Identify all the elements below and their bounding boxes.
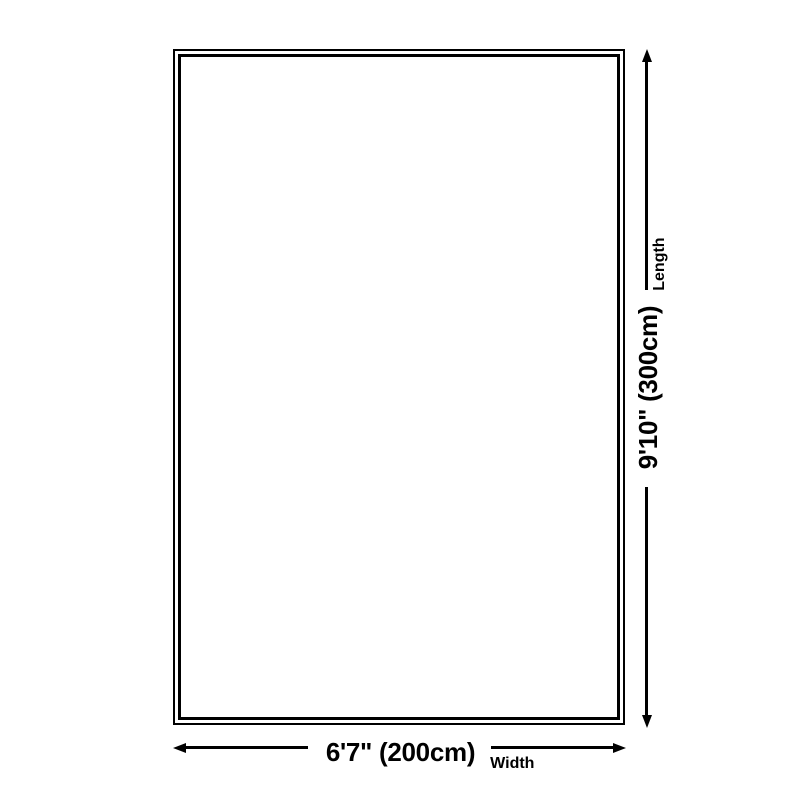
length-value: 9'10" (300cm) Length xyxy=(634,306,660,470)
arrow-up-icon xyxy=(641,49,651,62)
length-dimension-line-top xyxy=(645,62,648,290)
width-dimension-line-left xyxy=(186,746,308,749)
length-dimension: 9'10" (300cm) Length xyxy=(626,49,667,728)
width-dimension-line-right xyxy=(491,746,613,749)
arrow-down-icon xyxy=(641,715,651,728)
length-label: Length xyxy=(651,237,667,290)
length-dimension-line-bottom xyxy=(645,487,648,715)
width-dimension: 6'7" (200cm) Width xyxy=(173,727,626,768)
rug-outline xyxy=(173,49,625,725)
arrow-right-icon xyxy=(613,743,626,753)
length-value-text: 9'10" (300cm) xyxy=(632,306,662,470)
width-value-text: 6'7" (200cm) xyxy=(326,737,475,767)
rug-outline-inner xyxy=(178,54,620,720)
width-label: Width xyxy=(490,756,534,772)
width-value: 6'7" (200cm) Width xyxy=(326,739,475,765)
arrow-left-icon xyxy=(173,743,186,753)
rug-size-diagram: 6'7" (200cm) Width 9'10" (300cm) Length xyxy=(0,0,800,800)
